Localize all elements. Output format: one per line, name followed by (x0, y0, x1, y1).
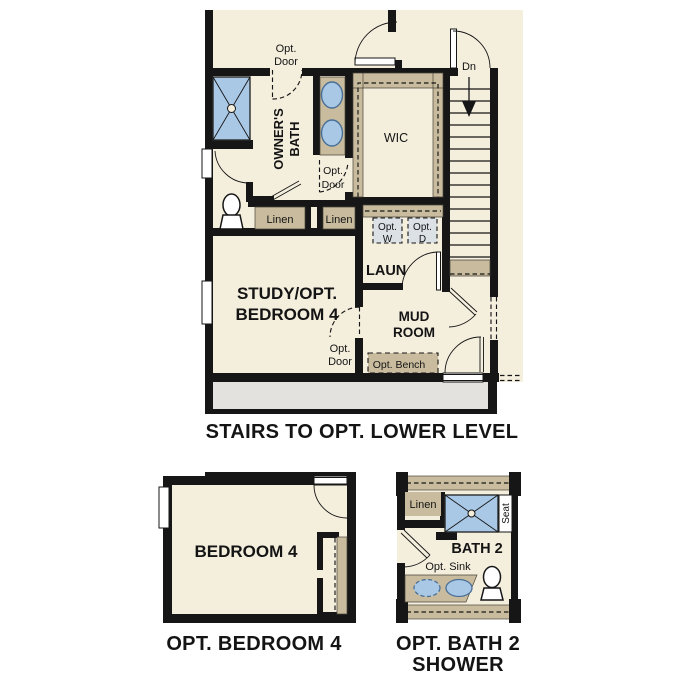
opt-washer-label: W (383, 234, 393, 245)
linen-label: Linen (267, 214, 294, 226)
opt-door-label: Door (322, 179, 345, 191)
mud-room-label-line1: MUD (399, 309, 430, 324)
study-label-line2: BEDROOM 4 (236, 305, 340, 324)
bath2-room-label: BATH 2 (451, 541, 502, 557)
sink-fixture (322, 120, 343, 146)
opt-washer-label: Opt. (378, 222, 397, 233)
owners-bath-label-line1: OWNER'S (271, 108, 286, 170)
mud-room-label-line2: ROOM (393, 325, 435, 340)
stairs-down-label: Dn (462, 61, 476, 73)
opt-dryer-label: Opt. (413, 222, 432, 233)
study-label-line1: STUDY/OPT. (237, 284, 337, 303)
opt-bedroom4-plan: BEDROOM 4 OPT. BEDROOM 4 (159, 472, 356, 655)
wic-label: WIC (384, 131, 408, 145)
shower-fixture (213, 77, 250, 140)
opt-bench-label: Opt. Bench (373, 359, 426, 371)
window (202, 149, 212, 178)
opt-dryer-label: D (419, 234, 426, 245)
opt-sink-label: Opt. Sink (425, 561, 471, 573)
bath2-caption-line2: SHOWER (412, 654, 504, 676)
floorplan-drawing: Opt. Door OWNER'S BATH WIC Dn Opt. Door … (0, 0, 687, 687)
floorplan-page: Opt. Door OWNER'S BATH WIC Dn Opt. Door … (0, 0, 687, 687)
seat-label: Seat (501, 503, 512, 524)
linen-label: Linen (410, 499, 437, 511)
window (159, 487, 169, 528)
main-plan-caption: STAIRS TO OPT. LOWER LEVEL (206, 421, 519, 443)
opt-door-label: Opt. (276, 43, 297, 55)
opt-door-label: Opt. (330, 343, 351, 355)
opt-bath2-plan: Linen Seat BATH 2 Opt. Sink OPT. BATH 2 … (396, 472, 521, 676)
opt-door-label: Door (274, 56, 298, 68)
bedroom4-room-label: BEDROOM 4 (195, 542, 299, 561)
owners-bath-label-line2: BATH (287, 121, 302, 156)
sink-fixture (446, 580, 472, 597)
stairs-to-lower-level-area (213, 382, 488, 409)
toilet-fixture (481, 567, 503, 601)
main-floor-plan: Opt. Door OWNER'S BATH WIC Dn Opt. Door … (202, 10, 523, 443)
bedroom4-caption: OPT. BEDROOM 4 (166, 633, 342, 655)
sink-fixture (322, 82, 343, 108)
closet-shelf (337, 537, 347, 614)
window (202, 281, 212, 324)
closet-wall-break (317, 570, 323, 578)
shower-fixture (445, 495, 498, 532)
opt-door-label: Door (328, 356, 352, 368)
laundry-label: LAUN (366, 263, 406, 279)
bath2-caption-line1: OPT. BATH 2 (396, 633, 520, 655)
opt-door-label: Opt. (323, 165, 343, 177)
linen-label: Linen (326, 214, 353, 226)
opt-sink-fixture (414, 580, 440, 597)
